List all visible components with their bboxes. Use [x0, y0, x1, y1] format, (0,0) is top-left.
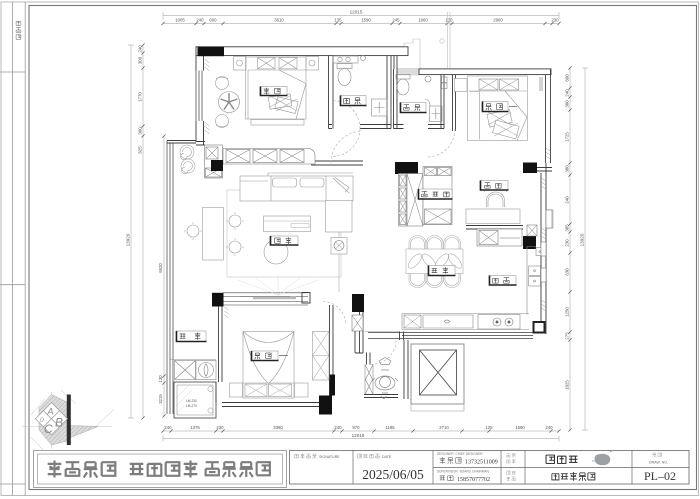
svg-text:3390: 3390 [273, 425, 283, 430]
svg-text:C: C [44, 422, 53, 436]
svg-text:2710: 2710 [439, 425, 449, 430]
svg-text:825: 825 [138, 146, 143, 154]
svg-text:1660: 1660 [418, 18, 428, 23]
svg-text:245: 245 [392, 18, 400, 23]
svg-text:240: 240 [334, 425, 342, 430]
svg-text:380: 380 [565, 100, 570, 108]
svg-text:600: 600 [565, 74, 570, 82]
svg-text:SIGNATURE: SIGNATURE [319, 455, 340, 459]
svg-text:13920: 13920 [580, 233, 585, 246]
svg-text:135: 135 [334, 18, 342, 23]
svg-text:DESIGNER CHIEF DESIGNER: DESIGNER CHIEF DESIGNER [437, 452, 483, 456]
svg-text:1725: 1725 [565, 132, 570, 142]
svg-text:230: 230 [551, 18, 559, 23]
svg-text:DRAW. NO.: DRAW. NO. [649, 461, 668, 465]
svg-text:230: 230 [565, 239, 570, 247]
svg-text:3610: 3610 [274, 18, 284, 23]
svg-text:1590: 1590 [361, 18, 371, 23]
svg-text:1375: 1375 [190, 425, 200, 430]
svg-text:6920: 6920 [158, 263, 163, 273]
svg-text:13732511009: 13732511009 [465, 460, 498, 466]
svg-text:630: 630 [565, 268, 570, 276]
svg-text:DATE: DATE [382, 455, 392, 459]
svg-text:3215: 3215 [158, 394, 163, 404]
svg-text:240: 240 [545, 425, 553, 430]
svg-text:1025: 1025 [565, 380, 570, 390]
svg-text:130: 130 [158, 375, 163, 383]
svg-text:230: 230 [216, 425, 224, 430]
svg-text:1690: 1690 [515, 425, 525, 430]
svg-text:1005: 1005 [175, 18, 185, 23]
svg-text:12015: 12015 [352, 433, 365, 438]
svg-text:A: A [47, 407, 54, 417]
svg-text:240: 240 [565, 196, 570, 204]
svg-text:PL–02: PL–02 [644, 469, 676, 483]
svg-text:B: B [55, 416, 63, 430]
svg-text:LM-270: LM-270 [186, 404, 197, 408]
svg-text:125: 125 [485, 425, 493, 430]
svg-text:600: 600 [209, 18, 217, 23]
svg-text:300: 300 [138, 56, 143, 64]
svg-text:1185: 1185 [385, 425, 395, 430]
svg-text:240: 240 [138, 45, 143, 53]
svg-text:240: 240 [565, 89, 570, 97]
svg-text:240: 240 [196, 18, 204, 23]
svg-text:2960: 2960 [493, 18, 503, 23]
svg-text:240: 240 [164, 425, 172, 430]
svg-text:13920: 13920 [126, 233, 131, 246]
svg-text:130: 130 [445, 18, 453, 23]
svg-text:SUPERVISOR BOARD CHAIRMAN: SUPERVISOR BOARD CHAIRMAN [437, 470, 490, 474]
svg-text:D: D [40, 418, 44, 424]
svg-text:300: 300 [138, 127, 143, 135]
svg-text:385: 385 [565, 224, 570, 232]
svg-text:1250: 1250 [565, 307, 570, 317]
svg-text:970: 970 [352, 425, 360, 430]
svg-text:2025/06/05: 2025/06/05 [362, 467, 424, 482]
svg-text:LM-230: LM-230 [186, 399, 197, 403]
svg-text:275: 275 [565, 332, 570, 340]
svg-text:12015: 12015 [350, 10, 363, 15]
svg-text:15857077702: 15857077702 [457, 477, 490, 483]
svg-text:1770: 1770 [138, 92, 143, 102]
svg-text:380: 380 [565, 165, 570, 173]
